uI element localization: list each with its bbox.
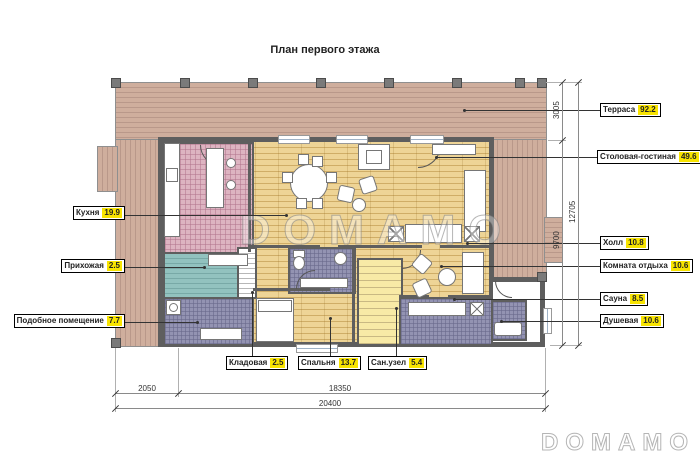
label-area: 10.6 <box>641 316 661 326</box>
leader-dot <box>463 109 466 112</box>
dimension-line <box>562 82 563 345</box>
label-wc: Сан.узел 5.4 <box>368 356 427 370</box>
lounger <box>462 252 484 294</box>
sauna-stove <box>470 302 484 316</box>
label-area: 19.9 <box>102 208 122 218</box>
towel-radiator <box>300 278 348 288</box>
pillar <box>180 78 190 88</box>
stool <box>226 158 236 168</box>
chair <box>282 172 293 183</box>
leader-dot <box>453 298 456 301</box>
terrace-top <box>115 82 547 141</box>
pillar <box>384 78 394 88</box>
label-terrace: Терраса 92.2 <box>600 103 661 117</box>
label-area: 2.5 <box>107 261 122 271</box>
pillar <box>515 78 525 88</box>
label-hallway: Прихожая 2.5 <box>61 259 125 273</box>
leader-dot <box>435 156 438 159</box>
pillar <box>537 272 547 282</box>
washing-machine-door <box>169 303 178 312</box>
label-area: 2.5 <box>270 358 285 368</box>
pillar <box>248 78 258 88</box>
window <box>336 135 368 144</box>
toilet <box>293 256 305 270</box>
leader-dot <box>203 266 206 269</box>
extension-line <box>545 348 546 412</box>
label-text: Кладовая <box>229 358 267 368</box>
shower-tray <box>494 322 522 336</box>
label-bedroom: Спальня 13.7 <box>298 356 361 370</box>
label-text: Холл <box>603 238 623 248</box>
label-text: Спальня <box>301 358 336 368</box>
label-storage: Кладовая 2.5 <box>226 356 288 370</box>
dim-12705: 12705 <box>568 192 577 232</box>
leader-line <box>396 308 397 356</box>
pillar <box>452 78 462 88</box>
label-text: Кухня <box>76 208 99 218</box>
watermark-corner: DOMAMO <box>541 429 695 457</box>
leader-line <box>465 110 600 111</box>
label-text: Столовая-гостиная <box>600 152 676 162</box>
leader-line <box>252 292 253 356</box>
hall-closet <box>208 254 248 266</box>
label-area: 10.8 <box>626 238 646 248</box>
leader-dot <box>466 242 469 245</box>
chair <box>312 156 323 167</box>
dining-table <box>290 164 328 202</box>
leader-line <box>437 157 597 158</box>
pillar <box>537 78 547 88</box>
leader-line <box>125 322 198 323</box>
watermark-center: DOMAMO <box>240 206 514 254</box>
tv-cabinet <box>432 144 476 155</box>
extension-line <box>115 348 116 412</box>
pillar <box>316 78 326 88</box>
wall <box>352 247 355 342</box>
label-text: Душевая <box>603 316 638 326</box>
dim-18350: 18350 <box>310 384 370 393</box>
leader-dot <box>196 321 199 324</box>
label-area: 92.2 <box>638 105 658 115</box>
chair <box>326 172 337 183</box>
label-text: Терраса <box>603 105 635 115</box>
leader-dot <box>251 291 254 294</box>
label-text: Сан.узел <box>371 358 406 368</box>
window <box>296 344 338 353</box>
leader-line <box>442 266 600 267</box>
leader-dot <box>329 317 332 320</box>
label-utility: Подобное помещение 7.7 <box>14 314 125 328</box>
label-sauna: Сауна 8.5 <box>600 292 648 306</box>
pillar <box>111 78 121 88</box>
stove <box>166 168 178 182</box>
label-text: Подобное помещение <box>17 316 104 326</box>
label-area: 10.6 <box>671 261 691 271</box>
stool <box>226 180 236 190</box>
label-area: 13.7 <box>339 358 359 368</box>
label-text: Прихожая <box>64 261 103 271</box>
leader-dot <box>395 307 398 310</box>
label-area: 8.5 <box>630 294 645 304</box>
kitchen-counter <box>164 143 180 237</box>
leader-dot <box>285 214 288 217</box>
leader-dot <box>440 265 443 268</box>
dim-9700: 9700 <box>552 222 561 258</box>
window <box>278 135 310 144</box>
wall <box>253 288 330 291</box>
label-living-dining: Столовая-гостиная 49.6 <box>597 150 700 164</box>
dim-3005: 3005 <box>552 92 561 128</box>
label-rest-room: Комната отдыха 10.6 <box>600 259 693 273</box>
leader-dot <box>500 320 503 323</box>
label-text: Сауна <box>603 294 627 304</box>
leader-line <box>330 318 331 356</box>
leader-line <box>125 215 287 216</box>
dim-2050: 2050 <box>120 384 174 393</box>
extension-line <box>178 348 179 397</box>
pillar <box>111 338 121 348</box>
deck-tab-left <box>97 146 118 192</box>
leader-line <box>502 321 600 322</box>
leader-line <box>125 267 205 268</box>
label-area: 49.6 <box>679 152 699 162</box>
label-shower: Душевая 10.6 <box>600 314 664 328</box>
label-area: 7.7 <box>107 316 122 326</box>
dimension-line <box>578 82 579 345</box>
label-text: Комната отдыха <box>603 261 668 271</box>
window <box>410 135 444 144</box>
label-kitchen: Кухня 19.9 <box>73 206 125 220</box>
utility-shelf <box>200 328 242 340</box>
dimension-line <box>115 408 545 409</box>
leader-line <box>468 243 600 244</box>
kitchen-island <box>206 148 224 208</box>
round-table <box>438 268 456 286</box>
dim-20400: 20400 <box>300 399 360 408</box>
label-area: 5.4 <box>409 358 424 368</box>
fireplace-insert <box>366 150 382 164</box>
sauna-bench <box>408 302 466 316</box>
bed-pillow <box>258 300 292 312</box>
chair <box>298 154 309 165</box>
label-hall: Холл 10.8 <box>600 236 649 250</box>
page-title: План первого этажа <box>225 44 425 56</box>
